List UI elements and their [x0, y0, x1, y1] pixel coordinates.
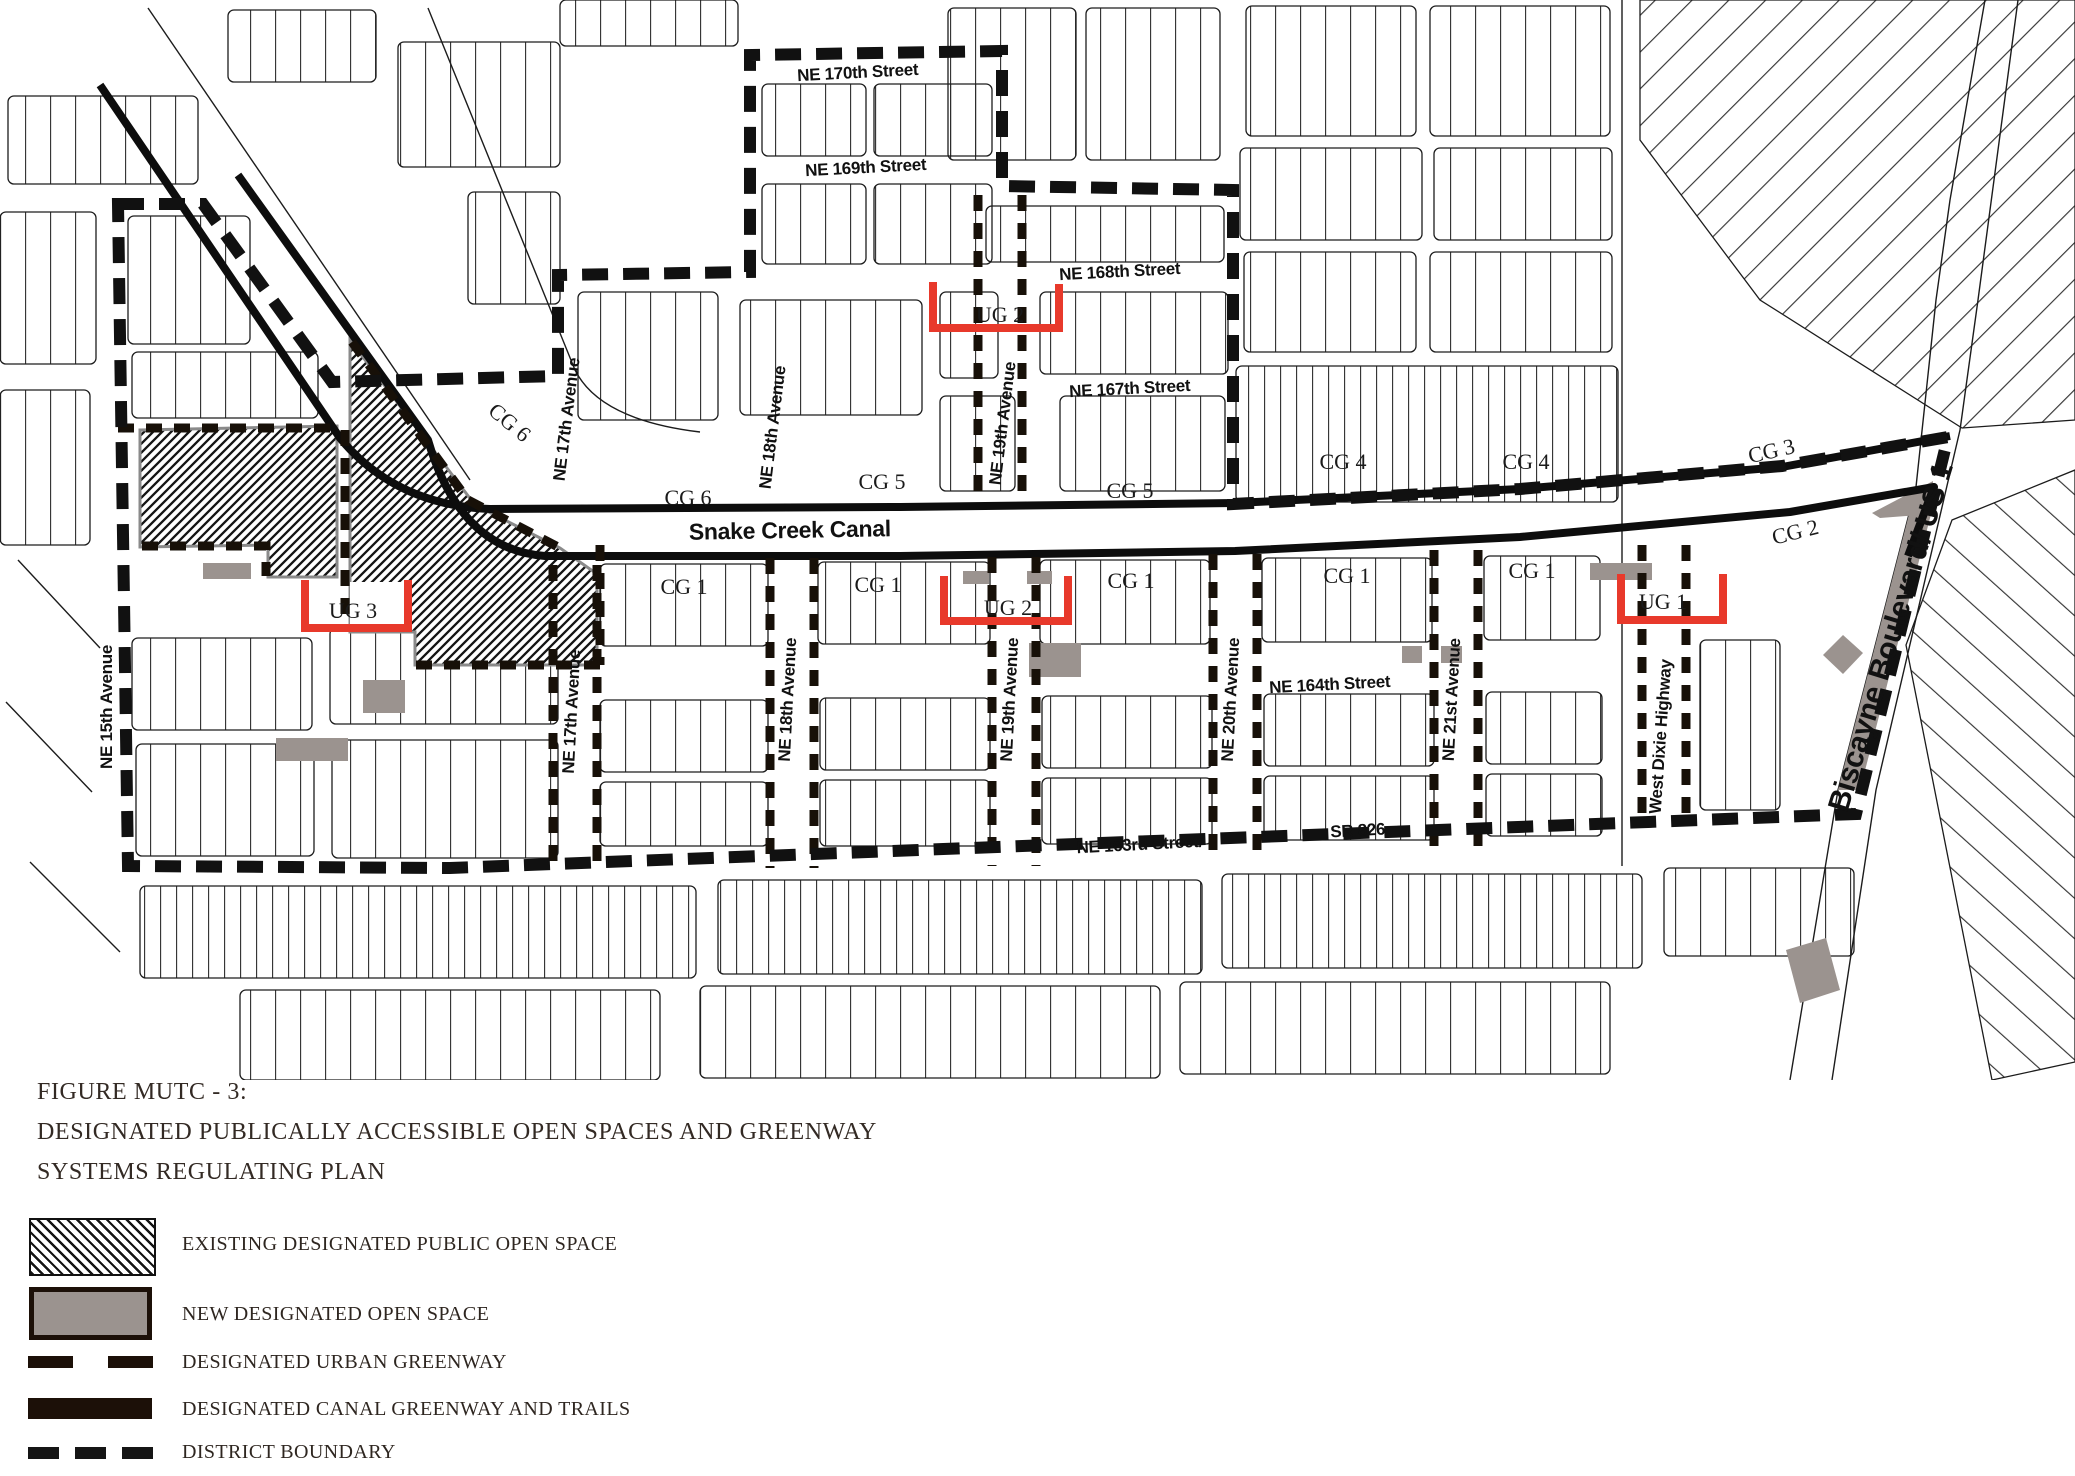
regulating-plan-map: NE 170th Street NE 169th Street NE 168th…	[0, 0, 2075, 1080]
zone-label-cg4-w: CG 4	[1319, 449, 1366, 474]
street-label-ne-170th: NE 170th Street	[797, 60, 920, 85]
canal-label: Snake Creek Canal	[689, 515, 891, 545]
legend-label-urban-greenway: DESIGNATED URBAN GREENWAY	[182, 1351, 507, 1374]
figure-title-l3: SYSTEMS REGULATING PLAN	[37, 1152, 877, 1192]
avenue-label-west-dixie: West Dixie Highway	[1646, 658, 1676, 815]
zone-label-cg5-w: CG 5	[858, 469, 905, 494]
zone-label-cg1-2: CG 1	[854, 572, 901, 597]
zone-label-cg1-3: CG 1	[1107, 568, 1154, 593]
zone-label-cg2: CG 2	[1769, 514, 1821, 550]
ug-label-ug2-south: UG 2	[984, 595, 1032, 620]
avenue-label-ne-19th-s: NE 19th Avenue	[997, 637, 1022, 762]
legend-label-canal-greenway: DESIGNATED CANAL GREENWAY AND TRAILS	[182, 1398, 630, 1421]
zone-label-cg1-1: CG 1	[660, 574, 707, 599]
ug-label-ug1: UG 1	[1639, 589, 1687, 614]
ug-label-ug2-north: UG 2	[976, 302, 1024, 327]
zone-label-cg6: CG 6	[664, 485, 711, 510]
legend-swatch-existing-open-space	[29, 1218, 156, 1276]
figure-page: NE 170th Street NE 169th Street NE 168th…	[0, 0, 2075, 1476]
zone-label-cg4-e: CG 4	[1502, 449, 1549, 474]
legend-label-district-boundary: DISTRICT BOUNDARY	[182, 1441, 396, 1464]
street-label-ne-169th: NE 169th Street	[805, 155, 928, 180]
avenue-label-ne-15th: NE 15th Avenue	[97, 645, 116, 769]
avenue-label-ne-18th-s: NE 18th Avenue	[775, 637, 800, 762]
figure-id-line: FIGURE MUTC - 3:	[37, 1072, 877, 1112]
zone-label-cg1-5: CG 1	[1508, 558, 1555, 583]
avenue-label-ne-20th: NE 20th Avenue	[1218, 637, 1243, 762]
street-label-sr-826: SR 826	[1330, 820, 1386, 842]
figure-title: FIGURE MUTC - 3: DESIGNATED PUBLICALLY A…	[37, 1072, 877, 1192]
hatched-open-space-west	[140, 426, 337, 577]
legend-swatch-canal-greenway	[28, 1398, 152, 1419]
legend-swatch-new-open-space	[29, 1287, 152, 1340]
zone-label-cg5-e: CG 5	[1106, 478, 1153, 503]
figure-title-l2: DESIGNATED PUBLICALLY ACCESSIBLE OPEN SP…	[37, 1112, 877, 1152]
zone-label-cg6-canal: CG 6	[484, 398, 536, 447]
zone-label-cg1-4: CG 1	[1323, 563, 1370, 588]
legend-label-new-open-space: NEW DESIGNATED OPEN SPACE	[182, 1303, 489, 1326]
legend-label-existing-open-space: EXISTING DESIGNATED PUBLIC OPEN SPACE	[182, 1233, 617, 1256]
ug-label-ug3: UG 3	[329, 598, 377, 623]
avenue-label-ne-17th-n: NE 17th Avenue	[550, 357, 584, 482]
